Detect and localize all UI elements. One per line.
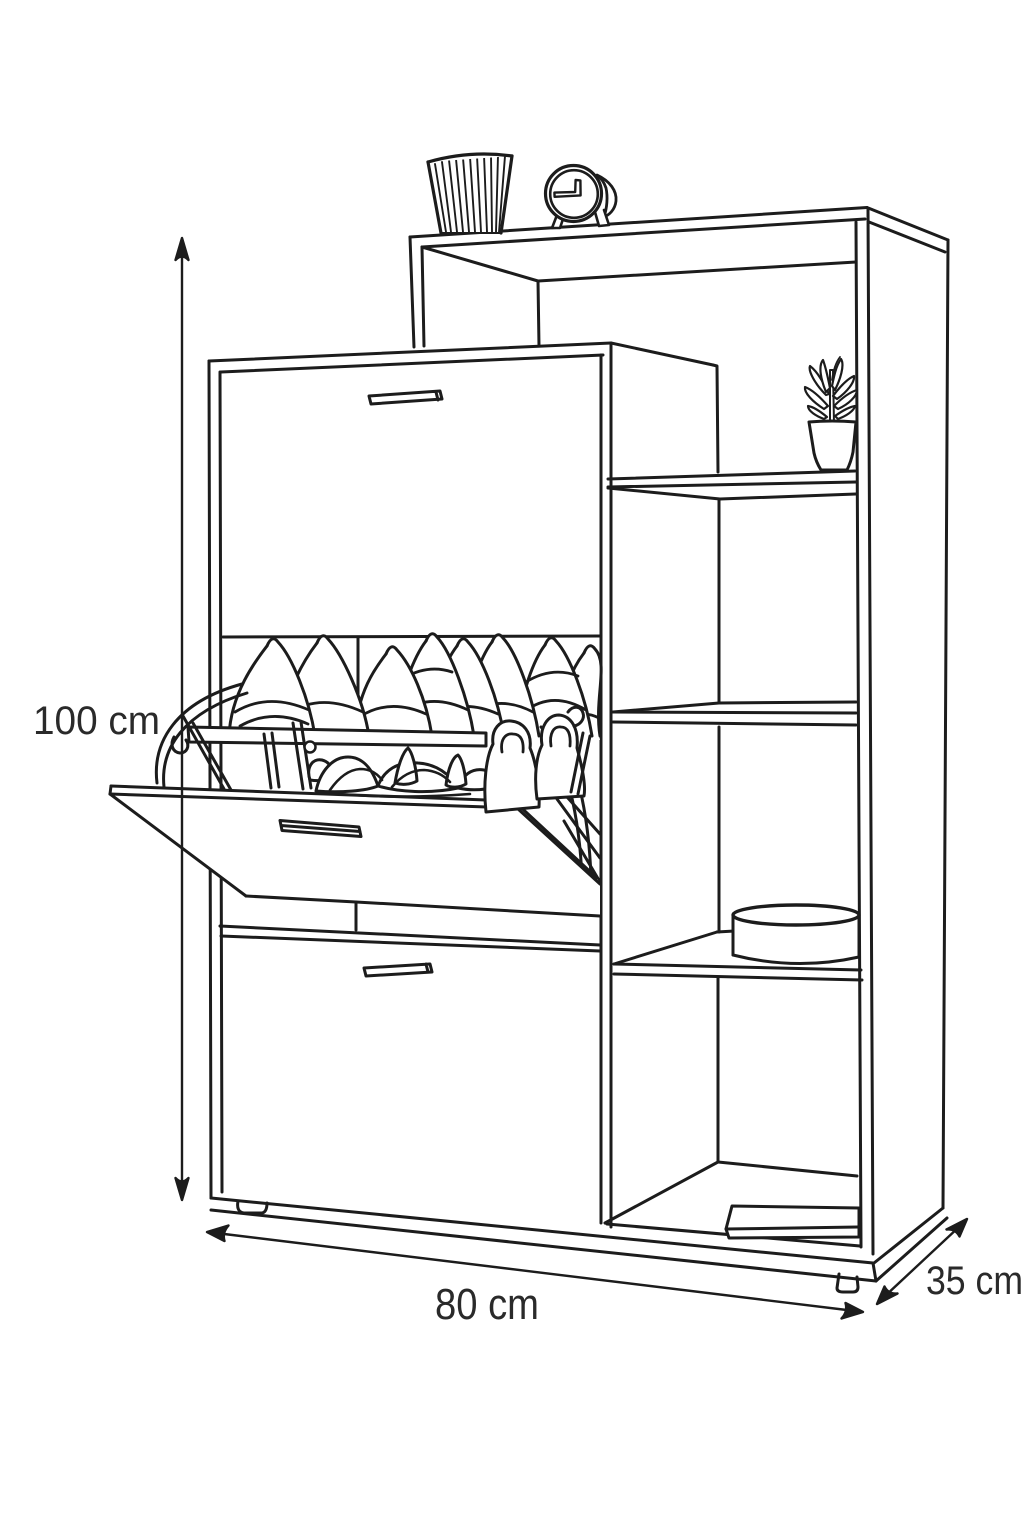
svg-text:35 cm: 35 cm [926,1259,1023,1303]
svg-text:80 cm: 80 cm [435,1280,539,1329]
svg-text:100 cm: 100 cm [33,699,160,743]
